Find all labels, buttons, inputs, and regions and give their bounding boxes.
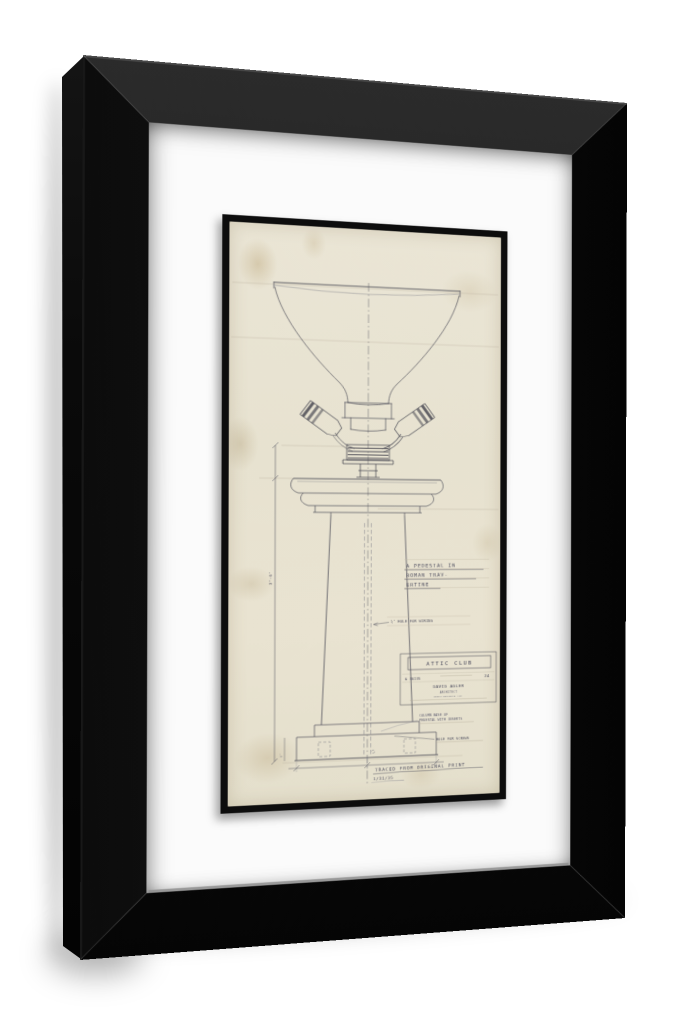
framed-print-photo: ½″ HOLE FOR WIRING A PEDESTAL IN ROMAN T…	[0, 0, 694, 1024]
dim-height-text: 3'-6″	[268, 571, 273, 585]
note-base-line2: PEDESTAL WITH INSERTS	[419, 718, 462, 723]
annotation-pedestal-line3: ERTINE	[406, 583, 429, 589]
base-plinth	[294, 721, 438, 761]
artwork: ½″ HOLE FOR WIRING A PEDESTAL IN ROMAN T…	[220, 214, 507, 814]
dimension-left	[271, 442, 285, 764]
torch-bowl	[273, 282, 460, 433]
title-block-number: № 36135	[405, 677, 421, 681]
note-base-line1: COLUMN BASE OF	[419, 713, 448, 718]
annotation-pedestal-line2: ROMAN TRAV-	[406, 573, 448, 579]
socket-left	[300, 400, 355, 451]
note-wiring-text: ½″ HOLE FOR WIRING	[391, 619, 434, 624]
note-screws: HOLE FOR SCREWS	[394, 733, 483, 744]
architect-title: ARCHITECT	[440, 690, 458, 694]
title-block: ATTIC CLUB № 36135 24 DAVID ADLER ARCHIT…	[400, 652, 496, 705]
title-block-client: ATTIC CLUB	[426, 661, 473, 667]
center-line	[367, 283, 368, 786]
dim-base-text: 6″	[279, 753, 283, 757]
title-block-sheet: 24	[484, 674, 489, 679]
traced-note-text: TRACED FROM ORIGINAL PRINT	[375, 762, 466, 773]
note-base: COLUMN BASE OF PEDESTAL WITH INSERTS	[381, 712, 474, 731]
architect-name: DAVID ADLER	[433, 684, 464, 690]
pedestal-drawing-svg: ½″ HOLE FOR WIRING A PEDESTAL IN ROMAN T…	[228, 221, 501, 806]
note-screws-text: HOLE FOR SCREWS	[436, 737, 469, 742]
architect-address: NORTH MICHIGAN AVE.	[434, 694, 463, 698]
base-inserts	[318, 739, 415, 757]
annotation-pedestal-line1: A PEDESTAL IN	[406, 563, 456, 569]
capital	[291, 478, 443, 515]
drawing-paper: ½″ HOLE FOR WIRING A PEDESTAL IN ROMAN T…	[228, 221, 501, 806]
picture-frame: ½″ HOLE FOR WIRING A PEDESTAL IN ROMAN T…	[80, 55, 627, 960]
